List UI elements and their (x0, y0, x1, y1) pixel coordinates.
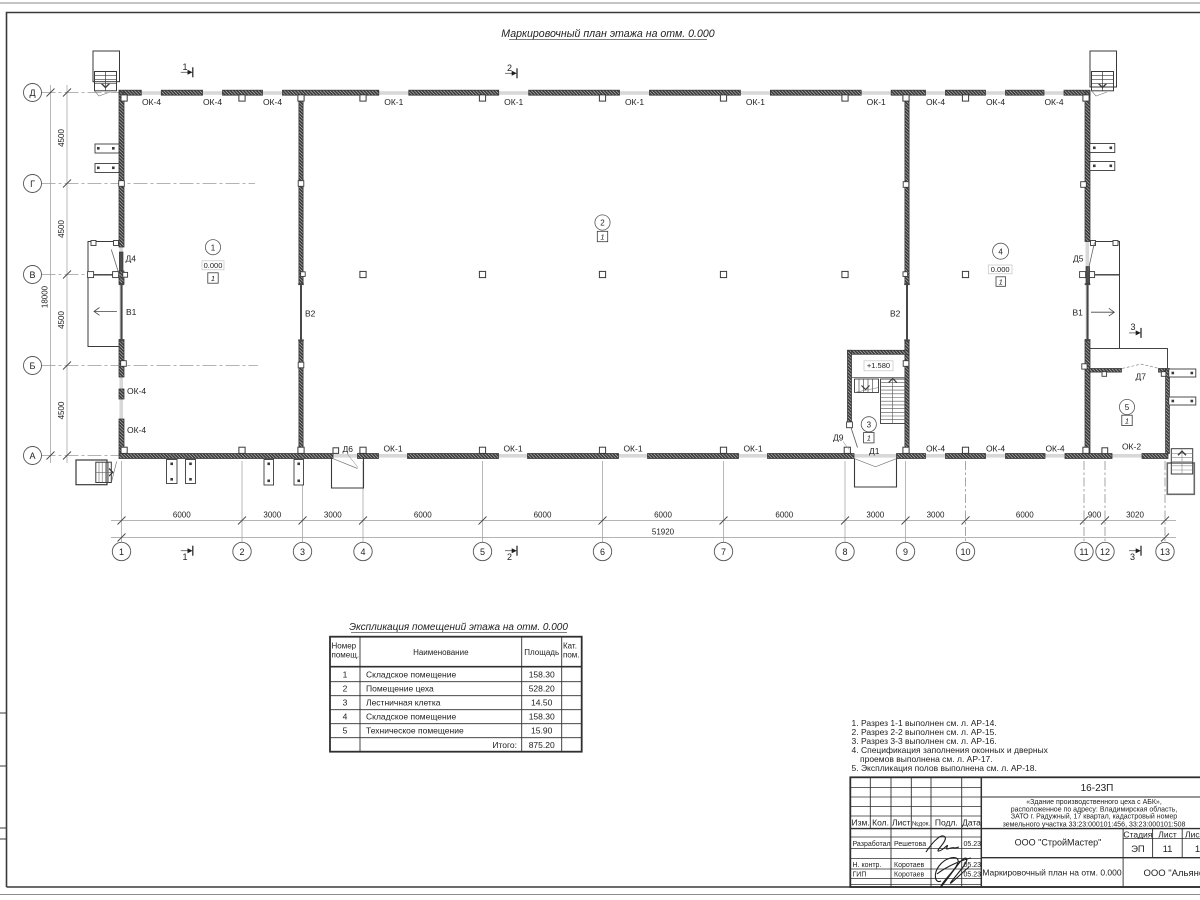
svg-text:1: 1 (999, 278, 1003, 287)
svg-text:15.90: 15.90 (531, 726, 553, 736)
svg-text:3000: 3000 (263, 511, 281, 520)
svg-text:ОК-1: ОК-1 (623, 444, 642, 454)
svg-text:ГИП: ГИП (853, 871, 867, 878)
svg-text:ООО "СтройМастер": ООО "СтройМастер" (1015, 838, 1102, 848)
svg-text:Г: Г (30, 179, 35, 189)
svg-text:3000: 3000 (324, 511, 342, 520)
svg-text:14.50: 14.50 (531, 698, 553, 708)
svg-text:18000: 18000 (41, 285, 50, 308)
svg-text:ОК-4: ОК-4 (926, 97, 945, 107)
svg-text:Стадия: Стадия (1123, 830, 1152, 840)
svg-text:Д7: Д7 (1136, 372, 1147, 382)
svg-text:Д6: Д6 (343, 444, 354, 454)
svg-text:1: 1 (182, 552, 187, 562)
svg-text:2: 2 (343, 684, 348, 694)
svg-text:3: 3 (1130, 322, 1135, 332)
svg-text:2: 2 (239, 547, 244, 557)
svg-text:4500: 4500 (57, 129, 66, 147)
svg-text:Решетова: Решетова (894, 841, 926, 848)
svg-text:5: 5 (480, 547, 485, 557)
svg-text:Д1: Д1 (869, 446, 880, 456)
svg-text:ОК-4: ОК-4 (263, 97, 282, 107)
svg-text:В: В (29, 270, 35, 280)
svg-text:1: 1 (1125, 416, 1129, 425)
svg-text:Наименование: Наименование (413, 648, 469, 657)
svg-text:9: 9 (903, 547, 908, 557)
svg-text:земельного участка 33:23:00010: земельного участка 33:23:000101:456, 33:… (1003, 821, 1186, 828)
svg-text:3000: 3000 (866, 511, 884, 520)
svg-text:Помещение цеха: Помещение цеха (366, 684, 434, 694)
svg-text:1: 1 (600, 233, 604, 242)
svg-text:05.23: 05.23 (964, 841, 982, 848)
svg-text:Лестничная клетка: Лестничная клетка (366, 698, 441, 708)
svg-text:4: 4 (343, 712, 348, 722)
svg-text:помещ.: помещ. (332, 651, 360, 660)
svg-text:1: 1 (182, 62, 187, 72)
svg-text:ОК-4: ОК-4 (1044, 97, 1063, 107)
svg-text:4: 4 (360, 547, 365, 557)
svg-text:Б: Б (30, 361, 36, 371)
svg-text:Площадь: Площадь (524, 648, 559, 657)
svg-text:Коротаев: Коротаев (894, 871, 925, 878)
svg-text:ОК-4: ОК-4 (142, 97, 161, 107)
svg-text:2: 2 (600, 219, 605, 228)
svg-text:Номер: Номер (332, 642, 357, 651)
svg-text:0.000: 0.000 (204, 261, 223, 270)
svg-text:Лист: Лист (1158, 830, 1177, 840)
svg-text:4500: 4500 (57, 401, 66, 419)
svg-text:11: 11 (1079, 547, 1088, 557)
svg-text:Складское помещение: Складское помещение (366, 670, 456, 680)
svg-text:ОК-1: ОК-1 (383, 444, 402, 454)
svg-text:1: 1 (343, 670, 348, 680)
svg-text:7: 7 (721, 547, 726, 557)
svg-text:+1.580: +1.580 (867, 361, 890, 370)
svg-text:6000: 6000 (414, 511, 432, 520)
svg-text:11: 11 (1163, 844, 1173, 855)
svg-text:3: 3 (343, 698, 348, 708)
svg-text:13: 13 (1160, 547, 1170, 557)
svg-text:Лист: Лист (892, 818, 911, 828)
svg-text:Д5: Д5 (1073, 254, 1084, 264)
svg-text:№док.: №док. (912, 821, 930, 828)
svg-text:16-23П: 16-23П (1081, 783, 1114, 794)
svg-text:Н. контр.: Н. контр. (853, 862, 882, 869)
svg-text:Д4: Д4 (126, 254, 137, 264)
svg-text:1: 1 (867, 434, 871, 443)
svg-text:51920: 51920 (652, 528, 675, 537)
svg-text:Лис: Лис (1185, 830, 1200, 840)
svg-text:3: 3 (867, 421, 872, 430)
svg-text:1: 1 (211, 243, 216, 252)
svg-text:Техническое помещение: Техническое помещение (366, 726, 464, 736)
svg-text:Маркировочный план на отм. 0.0: Маркировочный план на отм. 0.000 (982, 867, 1122, 877)
svg-text:900: 900 (1088, 511, 1102, 520)
svg-text:пом.: пом. (563, 651, 580, 660)
svg-text:12: 12 (1100, 547, 1110, 557)
svg-text:ОК-4: ОК-4 (127, 386, 146, 396)
svg-text:ОК-1: ОК-1 (625, 97, 644, 107)
svg-text:4: 4 (998, 247, 1003, 256)
svg-text:А: А (29, 451, 35, 461)
svg-text:158.30: 158.30 (529, 670, 555, 680)
svg-text:3: 3 (1130, 552, 1135, 562)
svg-text:875.20: 875.20 (529, 740, 555, 750)
svg-text:Разработал: Разработал (853, 840, 891, 848)
svg-text:В2: В2 (305, 309, 316, 319)
svg-text:Экспликация помещений этажа на: Экспликация помещений этажа на отм. 0.00… (349, 622, 568, 633)
svg-text:ООО "АльянсПроект": ООО "АльянсПроект" (1144, 868, 1200, 879)
svg-text:ОК-1: ОК-1 (743, 444, 762, 454)
svg-text:ОК-1: ОК-1 (503, 444, 522, 454)
svg-text:В2: В2 (890, 309, 901, 319)
svg-text:Дата: Дата (962, 818, 981, 828)
svg-text:1: 1 (1195, 844, 1200, 855)
svg-text:Д9: Д9 (833, 433, 844, 443)
svg-text:ОК-4: ОК-4 (127, 425, 146, 435)
svg-text:Д: Д (29, 88, 35, 98)
svg-text:ОК-4: ОК-4 (203, 97, 222, 107)
svg-text:6: 6 (600, 547, 605, 557)
svg-text:Итого:: Итого: (492, 740, 517, 750)
svg-text:Коротаев: Коротаев (894, 862, 925, 869)
svg-text:528.20: 528.20 (529, 684, 555, 694)
svg-text:2: 2 (507, 63, 512, 73)
svg-text:2: 2 (507, 552, 512, 562)
svg-text:ЗАТО г. Радужный, 17 квартал,: ЗАТО г. Радужный, 17 квартал, кадастровы… (1011, 813, 1177, 821)
svg-text:5. Экспликация полов выполнена: 5. Экспликация полов выполнена см. л. АР… (852, 763, 1037, 773)
svg-text:4500: 4500 (57, 220, 66, 238)
svg-text:5: 5 (1125, 403, 1130, 412)
svg-text:1: 1 (119, 547, 124, 557)
svg-text:Кол.: Кол. (872, 818, 889, 828)
svg-text:В1: В1 (1073, 308, 1084, 318)
svg-text:05.23: 05.23 (964, 872, 982, 879)
svg-text:6000: 6000 (654, 511, 672, 520)
svg-text:1: 1 (211, 274, 215, 283)
svg-text:В1: В1 (126, 307, 137, 317)
svg-text:6000: 6000 (534, 511, 552, 520)
svg-text:6000: 6000 (775, 511, 793, 520)
svg-text:5: 5 (343, 726, 348, 736)
svg-text:Кат.: Кат. (563, 642, 577, 651)
svg-text:ОК-1: ОК-1 (504, 97, 523, 107)
svg-text:Изм.: Изм. (851, 818, 869, 828)
svg-text:ОК-4: ОК-4 (986, 97, 1005, 107)
svg-text:ОК-4: ОК-4 (926, 444, 945, 454)
svg-text:расположенное по адресу: Влади: расположенное по адресу: Владимирская об… (1011, 805, 1178, 813)
svg-text:3: 3 (300, 547, 305, 557)
svg-text:ОК-1: ОК-1 (746, 97, 765, 107)
svg-text:0.000: 0.000 (991, 265, 1010, 274)
svg-text:Складское помещение: Складское помещение (366, 712, 456, 722)
svg-text:8: 8 (842, 547, 847, 557)
svg-text:6000: 6000 (1016, 511, 1034, 520)
svg-text:«Здание производственного цеха: «Здание производственного цеха с АБК», (1026, 799, 1162, 806)
svg-text:ЭП: ЭП (1131, 844, 1145, 855)
svg-text:ОК-4: ОК-4 (986, 444, 1005, 454)
svg-text:3020: 3020 (1126, 511, 1144, 520)
svg-text:Подл.: Подл. (935, 818, 958, 828)
svg-text:ОК-1: ОК-1 (384, 97, 403, 107)
svg-text:6000: 6000 (173, 511, 191, 520)
svg-text:158.30: 158.30 (529, 712, 555, 722)
svg-text:3000: 3000 (927, 511, 945, 520)
svg-text:ОК-2: ОК-2 (1122, 442, 1141, 452)
svg-text:Маркировочный план этажа на от: Маркировочный план этажа на отм. 0.000 (501, 28, 714, 40)
svg-text:ОК-4: ОК-4 (1045, 444, 1064, 454)
svg-text:ОК-1: ОК-1 (867, 97, 886, 107)
svg-text:10: 10 (960, 547, 970, 557)
svg-text:4500: 4500 (57, 311, 66, 329)
